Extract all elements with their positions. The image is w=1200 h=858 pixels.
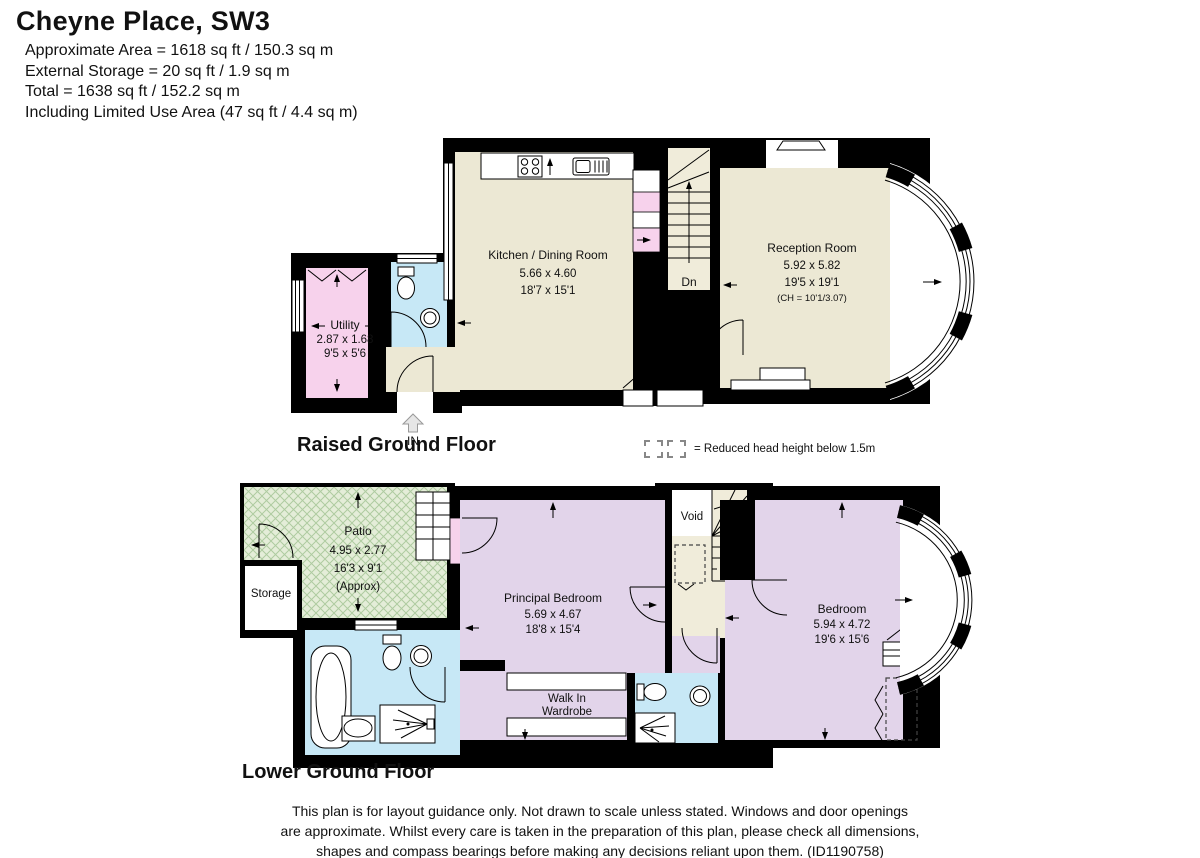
wc-room bbox=[391, 254, 447, 347]
bedroom-label: Bedroom bbox=[818, 602, 867, 616]
storage-line: External Storage = 20 sq ft / 1.9 sq m bbox=[25, 62, 358, 83]
principal-bedroom-label: Principal Bedroom bbox=[504, 591, 602, 605]
basin-icon bbox=[421, 309, 440, 328]
kitchen-counter bbox=[481, 153, 634, 179]
reception-dims-metric: 5.92 x 5.82 bbox=[784, 260, 841, 272]
toilet-icon bbox=[637, 684, 644, 700]
raised-ground-floor-plan: Utility 2.87 x 1.68 9'5 x 5'6 IN bbox=[285, 130, 995, 448]
total-line: Total = 1638 sq ft / 152.2 sq m bbox=[25, 82, 358, 103]
disclaimer-line: are approximate. Whilst every care is ta… bbox=[0, 821, 1200, 841]
entrance-arrow-icon bbox=[403, 414, 423, 432]
area-line: Approximate Area = 1618 sq ft / 150.3 sq… bbox=[25, 41, 358, 62]
utility-dims-metric: 2.87 x 1.68 bbox=[317, 334, 374, 346]
kitchen-window-rear bbox=[623, 390, 653, 406]
bay-window bbox=[885, 163, 977, 400]
lower-ground-floor-plan: Patio 4.95 x 2.77 16'3 x 9'1 (Approx) St… bbox=[235, 478, 980, 778]
bedroom-dims-imperial: 19'6 x 15'6 bbox=[815, 634, 870, 646]
floorplan-page: Cheyne Place, SW3 Approximate Area = 161… bbox=[0, 0, 1200, 858]
kitchen-dims-metric: 5.66 x 4.60 bbox=[520, 268, 577, 280]
legend: = Reduced head height below 1.5m bbox=[644, 439, 875, 459]
shower-icon bbox=[635, 713, 675, 743]
kitchen-window-rear2 bbox=[657, 390, 703, 406]
toilet-icon bbox=[383, 635, 401, 644]
legend-text: = Reduced head height below 1.5m bbox=[694, 443, 875, 455]
wardrobe-label-1: Walk In bbox=[548, 693, 586, 705]
patio-label: Patio bbox=[344, 524, 372, 538]
fireplace bbox=[731, 380, 810, 390]
reception-ceiling-height: (CH = 10'1/3.07) bbox=[777, 293, 847, 304]
utility-window bbox=[292, 280, 304, 332]
reception-dims-imperial: 19'5 x 19'1 bbox=[785, 277, 840, 289]
staircase-down: Dn bbox=[668, 148, 710, 290]
reduced-head-height-swatch-2 bbox=[667, 440, 686, 458]
principal-bedroom-dims-metric: 5.69 x 4.67 bbox=[525, 609, 582, 621]
bedroom-dims-metric: 5.94 x 4.72 bbox=[814, 619, 871, 631]
wardrobe-label-2: Wardrobe bbox=[542, 706, 592, 718]
disclaimer-line: shapes and compass bearings before makin… bbox=[0, 841, 1200, 858]
reception-room: Reception Room 5.92 x 5.82 19'5 x 19'1 (… bbox=[708, 140, 890, 390]
utility-dims-imperial: 9'5 x 5'6 bbox=[324, 348, 366, 360]
shower-icon bbox=[380, 705, 435, 743]
storage-room: Storage bbox=[240, 560, 302, 636]
limited-use-line: Including Limited Use Area (47 sq ft / 4… bbox=[25, 103, 358, 124]
storage-label: Storage bbox=[251, 588, 291, 600]
page-title: Cheyne Place, SW3 bbox=[16, 6, 358, 37]
patio-dims-imperial: 16'3 x 9'1 bbox=[334, 563, 383, 575]
void-label: Void bbox=[681, 511, 703, 523]
raised-ground-floor-label: Raised Ground Floor bbox=[297, 434, 496, 457]
stairs-down-label: Dn bbox=[681, 275, 696, 289]
patio-approx: (Approx) bbox=[336, 581, 380, 593]
bedroom: Bedroom 5.94 x 4.72 19'6 x 15'6 bbox=[720, 500, 917, 742]
bathroom-1 bbox=[305, 620, 460, 755]
reception-label: Reception Room bbox=[767, 241, 856, 255]
kitchen-label: Kitchen / Dining Room bbox=[488, 248, 607, 262]
toilet-icon bbox=[398, 267, 414, 276]
reduced-head-height-swatch-1 bbox=[644, 440, 663, 458]
disclaimer: This plan is for layout guidance only. N… bbox=[0, 801, 1200, 858]
hallway bbox=[672, 636, 720, 673]
bay-window bbox=[895, 505, 975, 695]
kitchen-dims-imperial: 18'7 x 15'1 bbox=[521, 285, 576, 297]
utility-label: Utility bbox=[330, 318, 359, 332]
lower-ground-floor-label: Lower Ground Floor bbox=[242, 761, 434, 784]
principal-bedroom-dims-imperial: 18'8 x 15'4 bbox=[526, 624, 582, 636]
disclaimer-line: This plan is for layout guidance only. N… bbox=[0, 801, 1200, 821]
cupboard-pink-1 bbox=[633, 192, 660, 212]
header: Cheyne Place, SW3 Approximate Area = 161… bbox=[16, 6, 358, 123]
patio-dims-metric: 4.95 x 2.77 bbox=[330, 545, 387, 557]
hob-icon bbox=[518, 156, 542, 177]
cupboards bbox=[633, 170, 660, 252]
